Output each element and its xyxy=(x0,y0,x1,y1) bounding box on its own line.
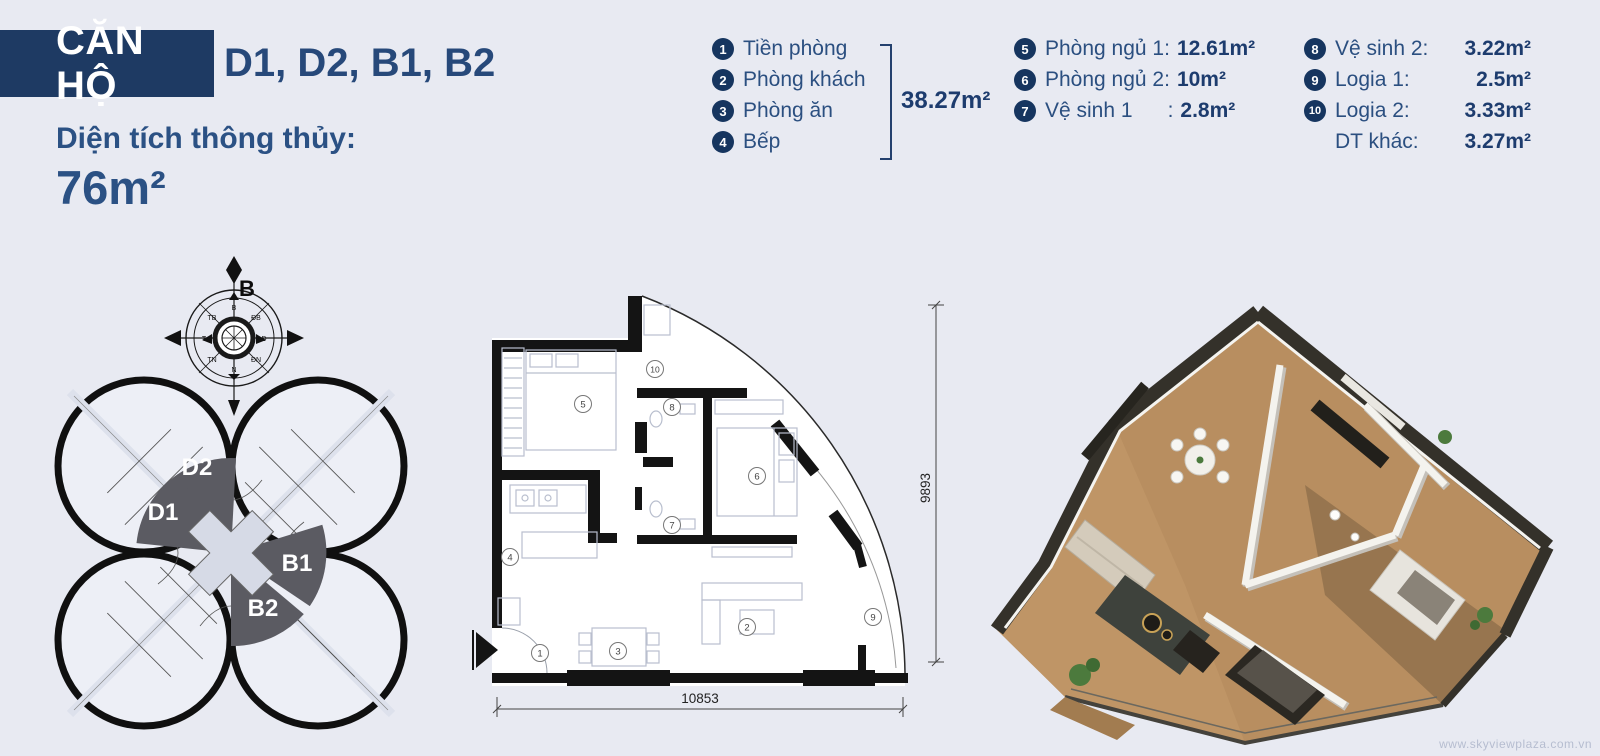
legend-group-bedrooms: 5 Phòng ngủ 1: 12.61m² 6 Phòng ngủ 2: 10… xyxy=(1014,38,1255,131)
room-name: Tiền phòng xyxy=(743,37,847,61)
net-area-label: Diện tích thông thủy: xyxy=(56,122,356,156)
legend-row: 7 Vệ sinh 1 : 2.8m² xyxy=(1014,100,1255,122)
legend-row: 4 Bếp xyxy=(712,131,866,153)
svg-text:D2: D2 xyxy=(182,454,213,481)
room-number: 3 xyxy=(610,643,627,660)
room-number: 8 xyxy=(664,399,681,416)
room-number-badge: 2 xyxy=(712,69,734,91)
tower-footprint: D2 D1 B1 B2 xyxy=(58,380,404,726)
legend-row: 10 Logia 2: 3.33m² xyxy=(1304,100,1531,122)
legend-row: DT khác: 3.27m² xyxy=(1304,131,1531,153)
svg-text:B1: B1 xyxy=(282,550,313,577)
floor-plan-2d: 1 2 3 4 5 6 7 8 9 10 10853 9893 xyxy=(440,283,950,756)
svg-text:1: 1 xyxy=(537,649,542,660)
north-label: B xyxy=(239,276,255,301)
svg-text:B: B xyxy=(232,305,237,312)
room-name: Phòng ngủ 2: xyxy=(1045,68,1170,92)
group-area-bracket xyxy=(880,44,892,160)
net-area-value: 76m² xyxy=(56,160,166,215)
svg-text:ĐN: ĐN xyxy=(251,357,261,364)
room-number: 9 xyxy=(865,609,882,626)
svg-text:5: 5 xyxy=(580,400,585,411)
room-number-badge: 9 xyxy=(1304,69,1326,91)
site-plan: B ĐB Đ ĐN N TN T TB B xyxy=(28,248,428,748)
width-dimension: 10853 xyxy=(681,691,719,706)
svg-text:D1: D1 xyxy=(148,499,179,526)
room-number: 7 xyxy=(664,517,681,534)
legend-row: 6 Phòng ngủ 2: 10m² xyxy=(1014,69,1255,91)
room-number: 4 xyxy=(502,549,519,566)
legend-row: 8 Vệ sinh 2: 3.22m² xyxy=(1304,38,1531,60)
floor-area xyxy=(492,296,905,686)
svg-text:Đ: Đ xyxy=(261,336,266,343)
apartment-unit-list: D1, D2, B1, B2 xyxy=(224,30,495,97)
svg-text:T: T xyxy=(202,336,207,343)
svg-text:9: 9 xyxy=(870,613,875,624)
svg-text:6: 6 xyxy=(754,472,759,483)
svg-text:2: 2 xyxy=(744,623,749,634)
room-name: Logia 2: xyxy=(1335,99,1441,123)
room-area: 2.8m² xyxy=(1180,99,1235,123)
brochure-page: { "header": { "badge": "CĂN HỘ", "units"… xyxy=(0,0,1600,756)
apartment-title: CĂN HỘ xyxy=(56,19,214,109)
room-number-badge: 3 xyxy=(712,100,734,122)
legend-row: 2 Phòng khách xyxy=(712,69,866,91)
legend-row: 9 Logia 1: 2.5m² xyxy=(1304,69,1531,91)
room-number: 5 xyxy=(575,396,592,413)
svg-text:B2: B2 xyxy=(248,595,279,622)
legend-group-entry-living: 1 Tiền phòng 2 Phòng khách 3 Phòng ăn 4 … xyxy=(712,38,866,162)
room-number: 1 xyxy=(532,645,549,662)
room-number-badge: 6 xyxy=(1014,69,1036,91)
room-name: Phòng khách xyxy=(743,68,866,92)
room-number: 10 xyxy=(647,361,664,378)
room-number-badge: 1 xyxy=(712,38,734,60)
room-name: Bếp xyxy=(743,130,780,154)
room-area: 3.27m² xyxy=(1443,130,1531,154)
svg-text:TN: TN xyxy=(207,357,216,364)
legend-row: 5 Phòng ngủ 1: 12.61m² xyxy=(1014,38,1255,60)
room-number-badge: 4 xyxy=(712,131,734,153)
legend-row: 1 Tiền phòng xyxy=(712,38,866,60)
legend-row: 3 Phòng ăn xyxy=(712,100,866,122)
room-number-badge: 7 xyxy=(1014,100,1036,122)
website-watermark: www.skyviewplaza.com.vn xyxy=(1439,737,1592,751)
height-dimension: 9893 xyxy=(918,473,933,503)
room-area: 2.5m² xyxy=(1443,68,1531,92)
svg-text:3: 3 xyxy=(615,647,620,658)
room-name: Logia 1: xyxy=(1335,68,1441,92)
room-number: 6 xyxy=(749,468,766,485)
room-number-badge: 5 xyxy=(1014,38,1036,60)
room-area: 12.61m² xyxy=(1177,37,1255,61)
room-number-badge: 10 xyxy=(1304,100,1326,122)
room-name: Phòng ngủ 1: xyxy=(1045,37,1170,61)
svg-text:ĐB: ĐB xyxy=(251,315,261,322)
room-number: 2 xyxy=(739,619,756,636)
legend-group-bath-logia: 8 Vệ sinh 2: 3.22m² 9 Logia 1: 2.5m² 10 … xyxy=(1304,38,1531,162)
room-name: Vệ sinh 1 : xyxy=(1045,99,1173,123)
room-name: Phòng ăn xyxy=(743,99,833,123)
apartment-title-badge: CĂN HỘ xyxy=(0,30,214,97)
apartment-3d-render xyxy=(945,285,1565,750)
svg-text:4: 4 xyxy=(507,553,512,564)
room-area: 10m² xyxy=(1177,68,1226,92)
room-name: DT khác: xyxy=(1335,130,1441,154)
room-number-badge: 8 xyxy=(1304,38,1326,60)
svg-text:TB: TB xyxy=(208,315,217,322)
svg-text:N: N xyxy=(231,367,236,374)
room-name: Vệ sinh 2: xyxy=(1335,37,1441,61)
group-area-value: 38.27m² xyxy=(901,87,990,115)
room-area: 3.22m² xyxy=(1443,37,1531,61)
room-area: 3.33m² xyxy=(1443,99,1531,123)
svg-text:8: 8 xyxy=(669,403,674,414)
svg-text:7: 7 xyxy=(669,521,674,532)
svg-text:10: 10 xyxy=(650,365,660,375)
